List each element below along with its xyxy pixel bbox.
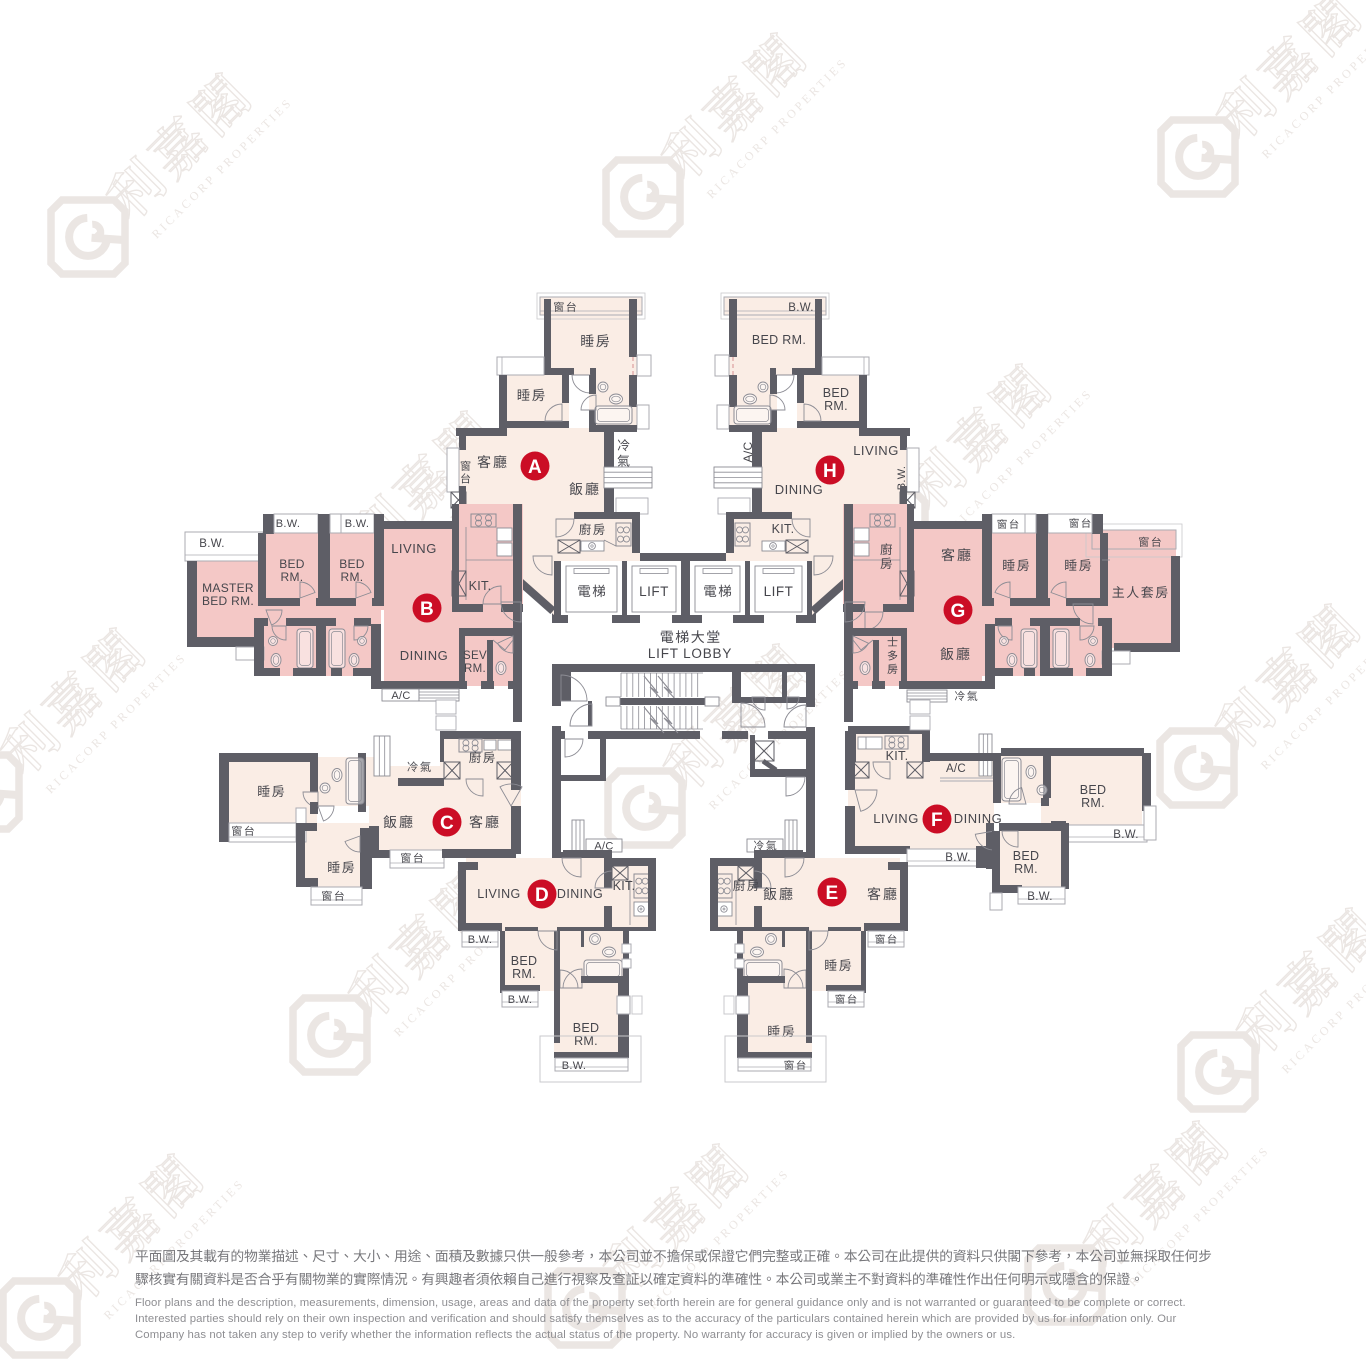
svg-text:B.W.: B.W.: [788, 302, 813, 314]
svg-text:BED: BED: [1013, 849, 1040, 863]
svg-text:BED: BED: [339, 557, 365, 571]
svg-text:D: D: [535, 885, 549, 906]
svg-text:DINING: DINING: [775, 482, 824, 497]
svg-text:LIVING: LIVING: [477, 887, 520, 901]
svg-text:Company has not taken any step: Company has not taken any step to verify…: [135, 1329, 1015, 1341]
svg-text:KIT.: KIT.: [772, 522, 795, 536]
svg-text:B.W.: B.W.: [508, 994, 532, 1006]
svg-text:RM.: RM.: [1081, 796, 1105, 810]
svg-text:LIFT LOBBY: LIFT LOBBY: [648, 646, 732, 661]
svg-text:DINING: DINING: [954, 811, 1003, 826]
svg-text:MASTER: MASTER: [202, 581, 254, 595]
svg-text:LIVING: LIVING: [391, 541, 437, 556]
svg-text:B.W.: B.W.: [945, 852, 970, 864]
svg-text:LIVING: LIVING: [853, 443, 899, 458]
svg-text:LIFT: LIFT: [764, 584, 794, 599]
svg-text:RM.: RM.: [341, 570, 364, 584]
svg-text:BED RM.: BED RM.: [752, 333, 806, 347]
svg-text:LIFT: LIFT: [639, 584, 669, 599]
svg-text:B.W.: B.W.: [345, 518, 369, 530]
svg-text:DINING: DINING: [400, 648, 449, 663]
svg-text:B.W.: B.W.: [1113, 829, 1138, 841]
svg-text:Interested parties should rely: Interested parties should rely on their …: [135, 1313, 1176, 1325]
svg-text:B.W.: B.W.: [562, 1060, 586, 1072]
svg-text:E: E: [826, 883, 839, 904]
svg-text:C: C: [440, 813, 454, 834]
svg-text:Floor plans and the descriptio: Floor plans and the description, measure…: [135, 1297, 1186, 1309]
svg-text:BED: BED: [1080, 783, 1107, 797]
svg-text:BED RM.: BED RM.: [202, 594, 254, 608]
svg-text:RM.: RM.: [464, 663, 486, 675]
svg-text:A/C: A/C: [391, 690, 410, 702]
svg-text:B.W.: B.W.: [199, 538, 224, 550]
svg-text:B.W.: B.W.: [1027, 891, 1052, 903]
svg-text:BED: BED: [573, 1021, 600, 1035]
svg-text:A: A: [528, 457, 542, 478]
svg-text:B.W.: B.W.: [276, 518, 300, 530]
svg-text:RM.: RM.: [1014, 862, 1038, 876]
svg-text:KIT.: KIT.: [886, 749, 909, 763]
svg-text:KIT.: KIT.: [613, 879, 636, 893]
svg-text:A/C: A/C: [741, 442, 755, 463]
svg-text:DINING: DINING: [557, 887, 603, 901]
svg-text:H: H: [823, 461, 837, 482]
svg-text:RM.: RM.: [512, 967, 536, 981]
svg-text:BED: BED: [279, 557, 305, 571]
svg-text:LIVING: LIVING: [873, 811, 919, 826]
svg-text:F: F: [931, 810, 943, 831]
svg-text:G: G: [950, 601, 965, 622]
svg-text:BED: BED: [511, 954, 538, 968]
svg-text:RM.: RM.: [824, 399, 848, 413]
svg-text:SEV: SEV: [463, 650, 487, 662]
svg-text:A/C: A/C: [946, 763, 966, 775]
svg-text:B: B: [420, 599, 434, 620]
svg-text:B.W.: B.W.: [468, 934, 492, 946]
svg-text:KIT.: KIT.: [469, 579, 492, 593]
svg-text:BED: BED: [823, 386, 850, 400]
